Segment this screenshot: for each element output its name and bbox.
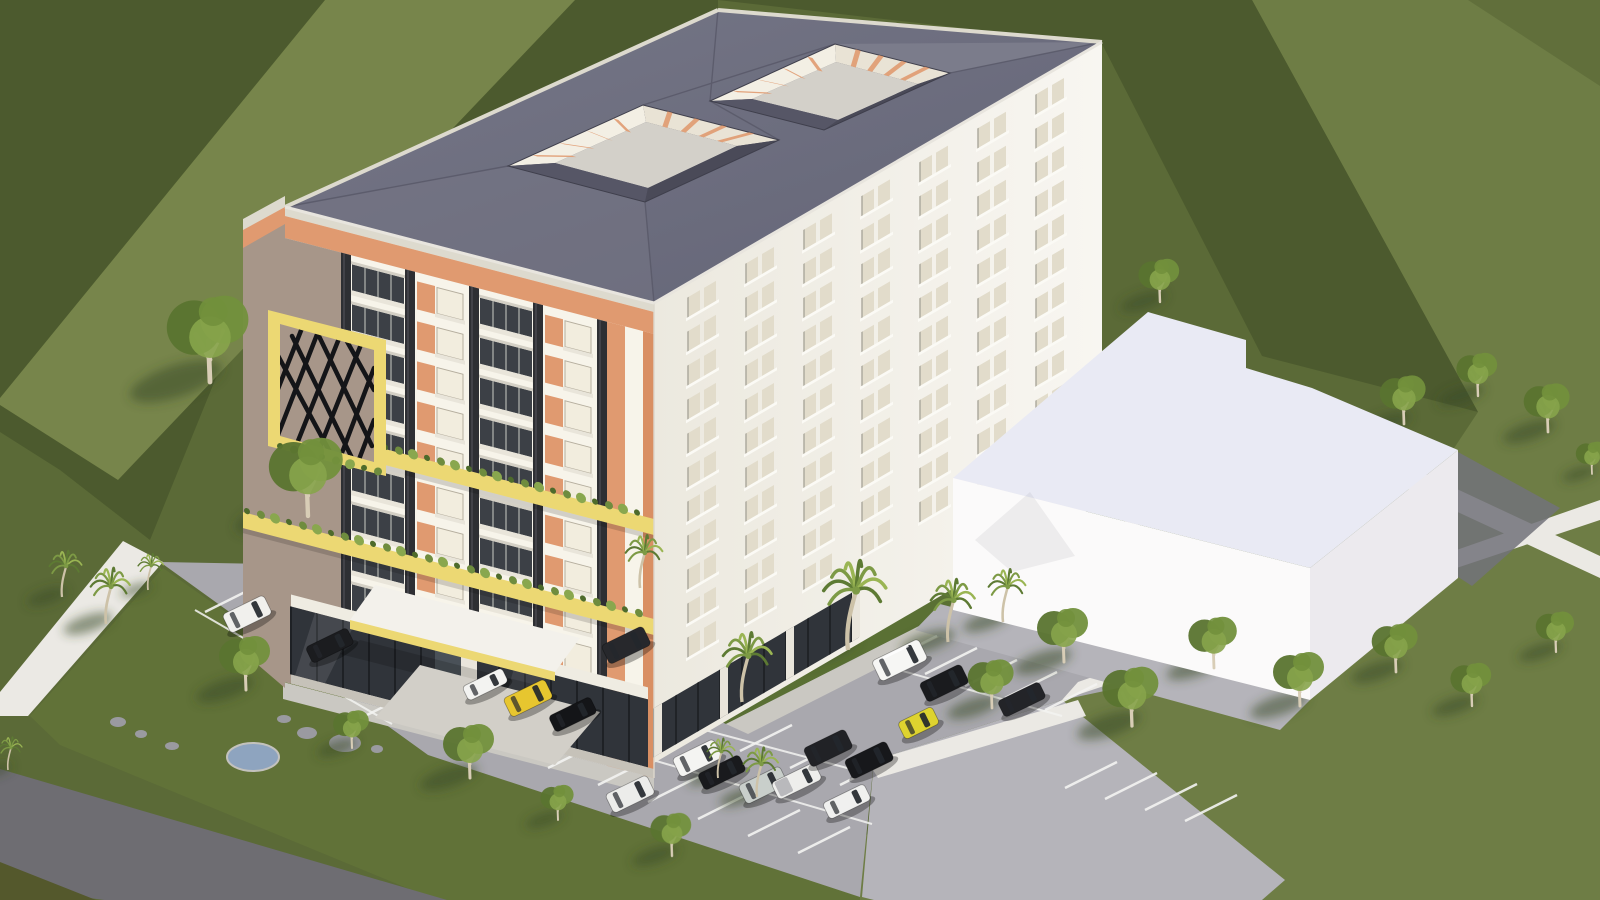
- palm-crown: [951, 597, 957, 603]
- tree-canopy: [1542, 384, 1558, 400]
- garden-pond: [227, 743, 279, 771]
- orange-window-frame: [545, 315, 563, 348]
- pilaster: [786, 626, 794, 680]
- palm-crown: [642, 550, 647, 555]
- stepping-stone: [297, 727, 317, 739]
- orange-window-frame: [417, 281, 435, 314]
- orange-window-frame: [545, 355, 563, 388]
- palm-crown: [745, 653, 751, 659]
- palm-crown: [109, 584, 114, 589]
- orange-window-frame: [545, 435, 563, 468]
- tree-canopy: [986, 660, 1002, 676]
- orange-window-frame: [545, 515, 563, 548]
- planter-plant: [361, 465, 367, 471]
- palm-crown: [852, 587, 860, 595]
- stepping-stone: [371, 745, 383, 753]
- tree-canopy: [1398, 376, 1414, 392]
- tree-canopy: [463, 725, 481, 743]
- tree-canopy: [1551, 612, 1565, 626]
- orange-window-frame: [545, 555, 563, 588]
- palm-crown: [150, 564, 153, 567]
- stepping-stone: [110, 717, 126, 727]
- tree-canopy: [1057, 609, 1075, 627]
- tree-canopy: [1588, 442, 1599, 453]
- pilaster: [720, 665, 728, 719]
- orange-window-frame: [545, 395, 563, 428]
- tree-canopy: [666, 814, 680, 828]
- stepping-stone: [277, 715, 291, 723]
- site-render: [0, 0, 1600, 900]
- pilaster: [654, 703, 662, 757]
- tree-canopy: [1207, 618, 1224, 635]
- tree-canopy: [239, 637, 257, 655]
- planter-plant: [345, 459, 355, 469]
- palm-crown: [10, 747, 13, 750]
- architectural-render-viewport: [0, 0, 1600, 900]
- orange-window-frame: [417, 481, 435, 514]
- orange-window-frame: [417, 361, 435, 394]
- tree-canopy: [1154, 260, 1168, 274]
- tree-canopy: [1293, 653, 1311, 671]
- tree-canopy: [199, 297, 228, 326]
- stepping-stone: [135, 730, 147, 738]
- palm-crown: [759, 762, 764, 767]
- palm-crown: [720, 750, 724, 754]
- palm-crown: [64, 564, 68, 568]
- tree-canopy: [298, 439, 324, 465]
- tree-canopy: [553, 786, 565, 798]
- planter-plant: [374, 467, 382, 475]
- palm-crown: [1005, 584, 1010, 589]
- tree-canopy: [1472, 354, 1486, 368]
- tree-canopy: [1124, 668, 1144, 688]
- orange-window-frame: [417, 321, 435, 354]
- tree-canopy: [1390, 624, 1406, 640]
- tree-canopy: [347, 711, 360, 724]
- orange-window-frame: [417, 521, 435, 554]
- stepping-stone: [165, 742, 179, 750]
- orange-window-frame: [417, 401, 435, 434]
- tree-canopy: [1466, 664, 1480, 678]
